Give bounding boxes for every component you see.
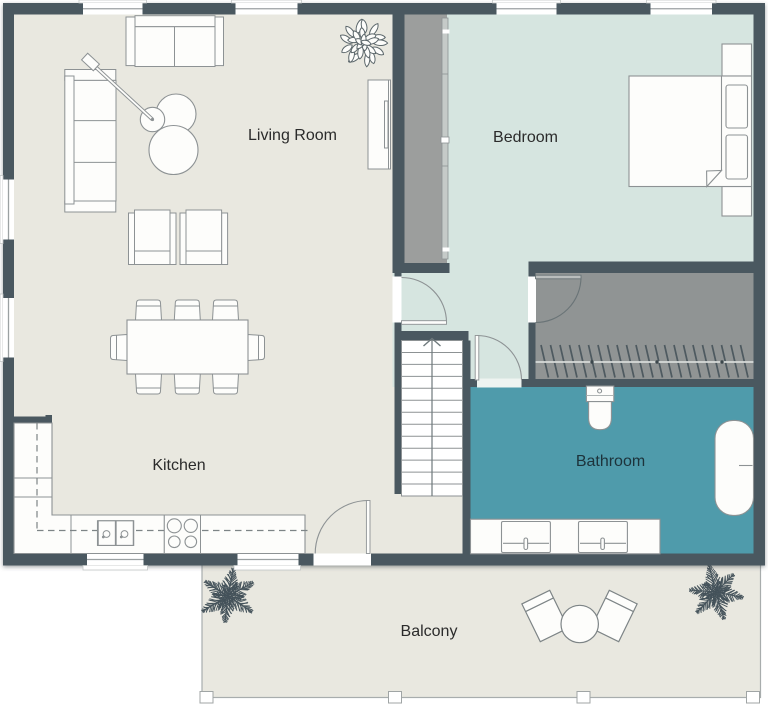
svg-text:Bedroom: Bedroom bbox=[493, 129, 558, 146]
svg-text:Balcony: Balcony bbox=[401, 623, 458, 640]
svg-text:Kitchen: Kitchen bbox=[152, 457, 205, 474]
svg-text:Living Room: Living Room bbox=[248, 127, 337, 144]
svg-text:Bathroom: Bathroom bbox=[576, 453, 645, 470]
